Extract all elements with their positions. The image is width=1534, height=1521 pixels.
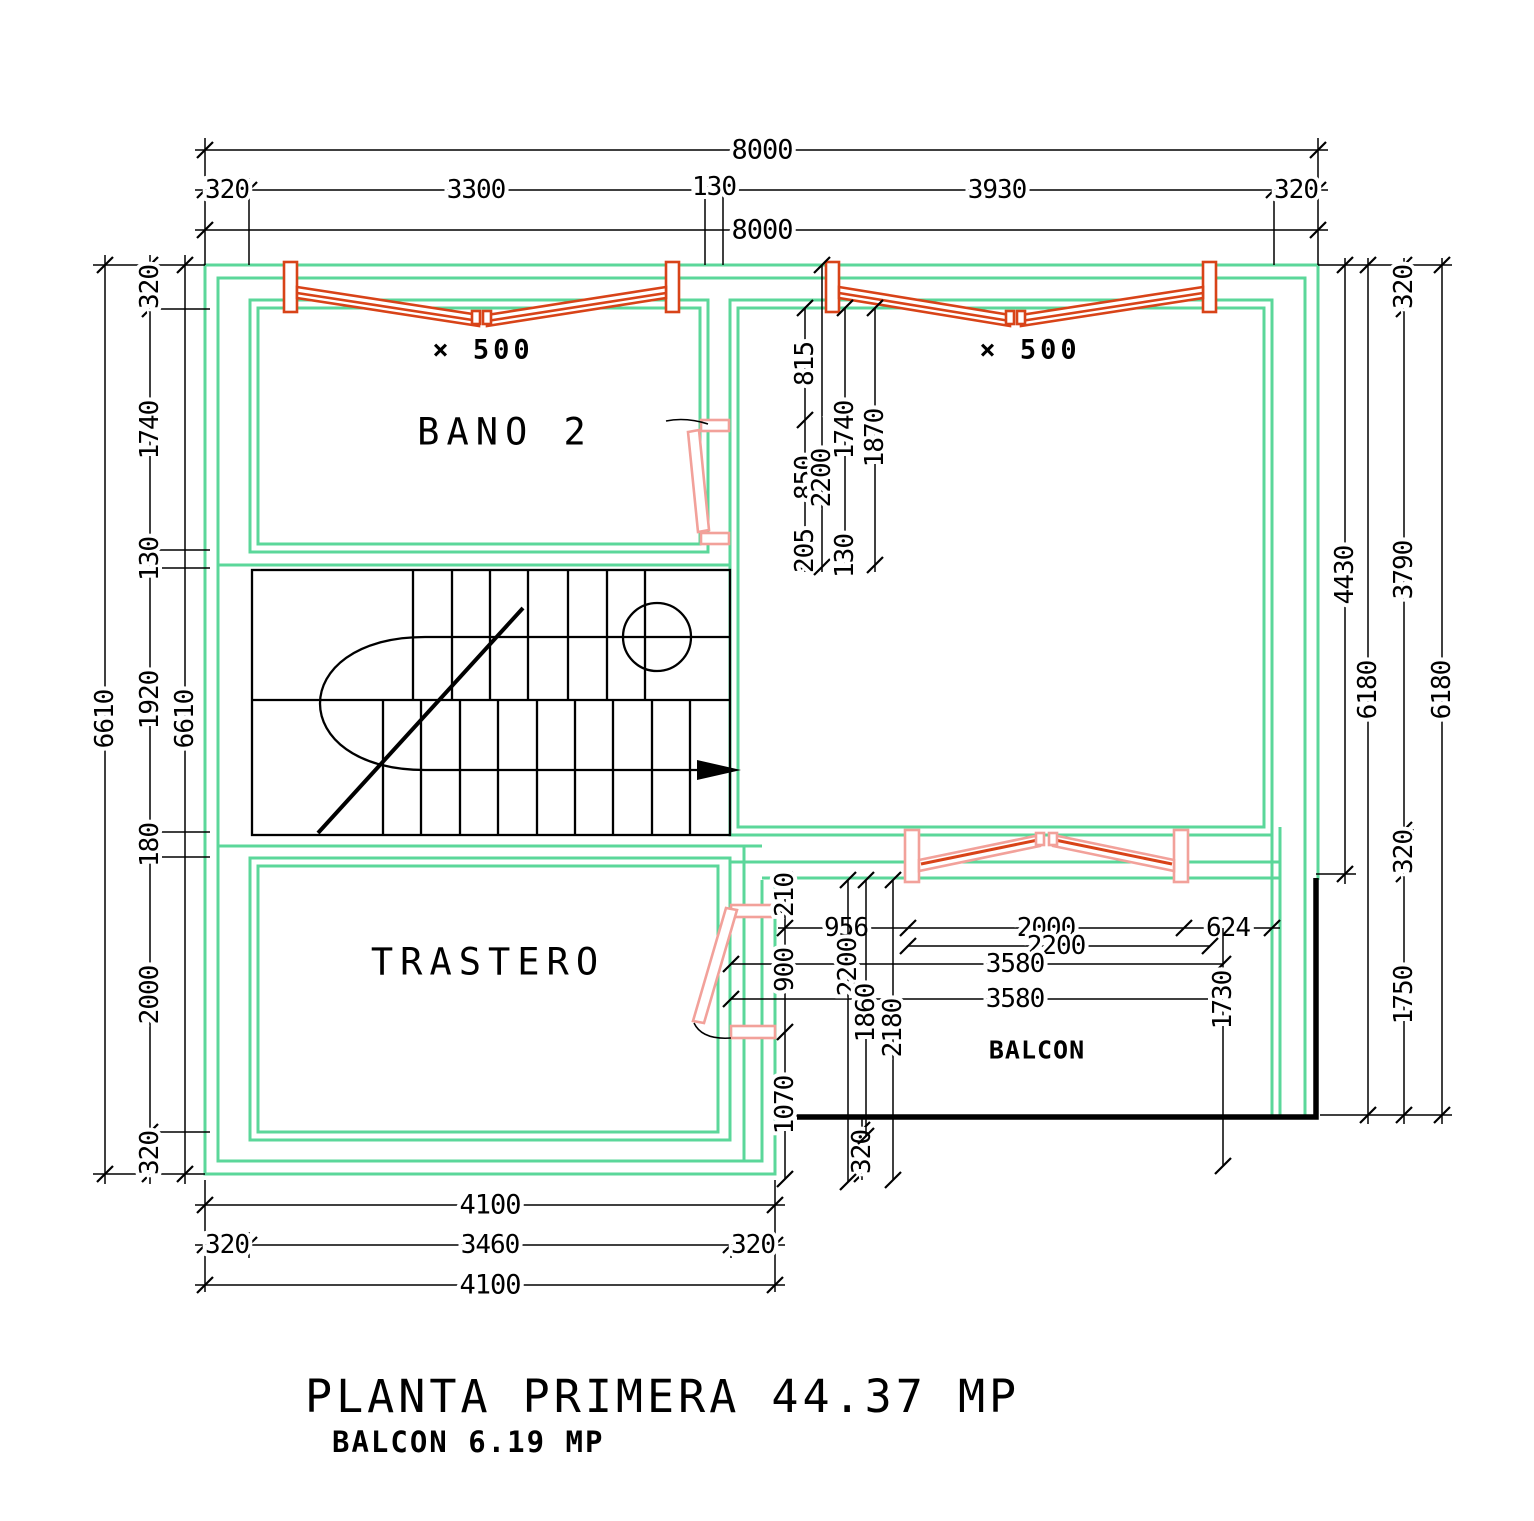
dim-left-wall-mid: 130	[135, 537, 165, 581]
bathroom-label: BANO 2	[417, 411, 593, 454]
dim-top-bath-width: 3300	[447, 175, 506, 205]
dim-right-room: 3790	[1389, 541, 1419, 600]
dim-bal-1860: 1860	[851, 984, 881, 1043]
dim-top-overall-1: 8000	[731, 135, 792, 166]
storage-inner-wall-2	[258, 866, 718, 1132]
stair-direction-arrow	[697, 760, 741, 780]
dim-left-wall-top: 320	[135, 265, 165, 309]
stair-walkline-turn	[320, 637, 425, 770]
dim-left-wall-low: 180	[135, 823, 165, 867]
dim-top-mid-wall: 130	[692, 172, 736, 202]
dim-bottom-storage-width: 3460	[461, 1230, 520, 1260]
dimensions-left: 6610 320 1740 130 1920 180 2000 320 6610	[90, 255, 210, 1184]
dim-bal-3580b: 3580	[986, 984, 1045, 1014]
dimensions-balcony: 956 2000 624 2200 3580 3580 210 900 1070…	[723, 872, 1280, 1190]
dim-bal-1070: 1070	[770, 1076, 800, 1135]
dim-bal-320: 320	[847, 1130, 877, 1174]
plan-subtitle: BALCON 6.19 MP	[332, 1425, 604, 1459]
balcony-label: BALCON	[989, 1036, 1085, 1065]
storage-label: TRASTERO	[371, 941, 605, 984]
floor-plan-page: × 500 × 500	[0, 0, 1534, 1521]
dim-bal-900: 900	[770, 948, 800, 992]
dim-right-wall-mid: 320	[1389, 830, 1419, 874]
dim-mid-815: 815	[790, 342, 820, 386]
dim-bottom-wall-left: 320	[205, 1230, 249, 1260]
floor-plan-drawing: × 500 × 500	[0, 0, 1534, 1521]
window-right-label: × 500	[979, 335, 1080, 366]
dimensions-right: 4430 6180 320 3790 320 1750 6180	[1316, 257, 1457, 1124]
dim-top-wall-left: 320	[205, 175, 249, 205]
dim-bal-3580a: 3580	[986, 949, 1045, 979]
dim-bal-624: 624	[1206, 913, 1250, 943]
dim-bal-2180: 2180	[878, 999, 908, 1058]
dim-left-overall-2: 6610	[170, 690, 200, 749]
dim-bottom-overall-1: 4100	[459, 1190, 520, 1221]
dimensions-bottom: 4100 320 3460 320 4100	[195, 1180, 785, 1301]
balcony-window	[905, 830, 1188, 882]
dim-right-overall-2: 6180	[1427, 661, 1457, 720]
plan-title: PLANTA PRIMERA 44.37 MP	[305, 1370, 1020, 1423]
dim-left-bath: 1740	[135, 401, 165, 460]
dim-right-balcony: 1750	[1389, 966, 1419, 1025]
dim-left-stair: 1920	[135, 671, 165, 730]
dim-right-wall-top: 320	[1389, 265, 1419, 309]
dim-top-overall-2: 8000	[731, 215, 792, 246]
dim-mid-205: 205	[790, 529, 820, 573]
dim-left-wall-bottom: 320	[135, 1131, 165, 1175]
storage-door-swing	[694, 1023, 731, 1038]
bathroom-door	[666, 420, 729, 544]
dim-top-wall-right: 320	[1274, 175, 1318, 205]
dim-bal-210: 210	[770, 873, 800, 917]
dim-bottom-wall-right: 320	[731, 1230, 775, 1260]
dim-mid-1870: 1870	[860, 409, 890, 468]
dimensions-top: 8000 320 3300 130 3930 320 8000	[195, 135, 1328, 266]
dim-mid-1740: 1740	[830, 401, 860, 460]
dim-mid-130: 130	[830, 534, 860, 578]
title-block: PLANTA PRIMERA 44.37 MP BALCON 6.19 MP	[305, 1370, 1020, 1459]
staircase	[252, 570, 741, 835]
storage-inner-wall-1	[250, 858, 730, 1140]
dim-bottom-overall-2: 4100	[459, 1270, 520, 1301]
dim-top-room-width: 3930	[968, 175, 1027, 205]
dim-left-storage: 2000	[135, 966, 165, 1025]
dim-right-upper: 4430	[1330, 546, 1360, 605]
dim-right-overall-1: 6180	[1353, 661, 1383, 720]
dim-bal-1730: 1730	[1208, 971, 1238, 1030]
dim-left-overall-1: 6610	[90, 690, 120, 749]
window-left-label: × 500	[432, 335, 533, 366]
